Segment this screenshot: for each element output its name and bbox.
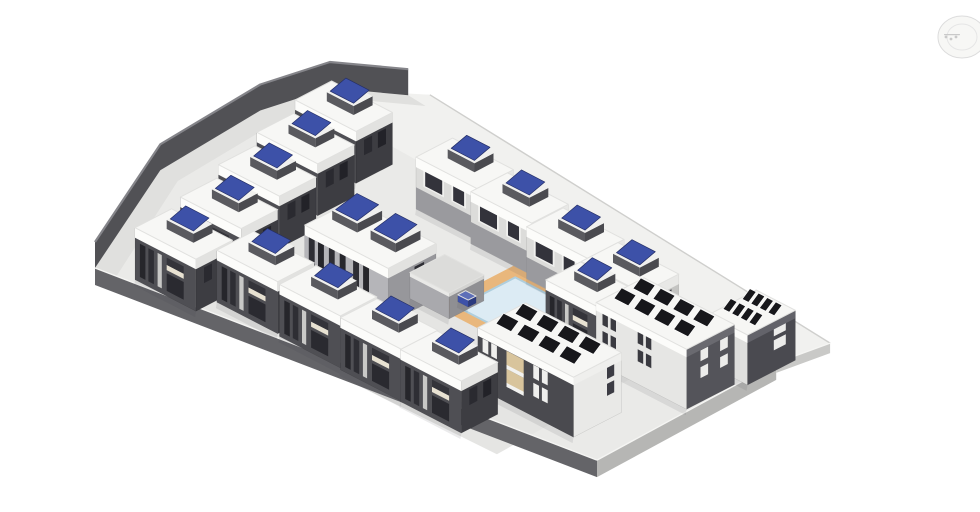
window [405,366,411,402]
window [140,244,146,280]
window [345,334,351,370]
window [158,253,162,289]
window [293,305,299,341]
application-window [0,0,980,512]
window [148,248,154,284]
window [302,310,306,346]
window [414,370,419,406]
window [284,300,290,336]
window [354,338,360,374]
model-viewport-canvas[interactable] [0,0,980,512]
navigation-wheel-ring [938,16,980,58]
window [239,275,243,311]
window [423,375,427,411]
navigation-wheel-icon[interactable] [934,8,980,68]
window [363,343,367,379]
window [222,266,228,302]
window [230,271,236,307]
